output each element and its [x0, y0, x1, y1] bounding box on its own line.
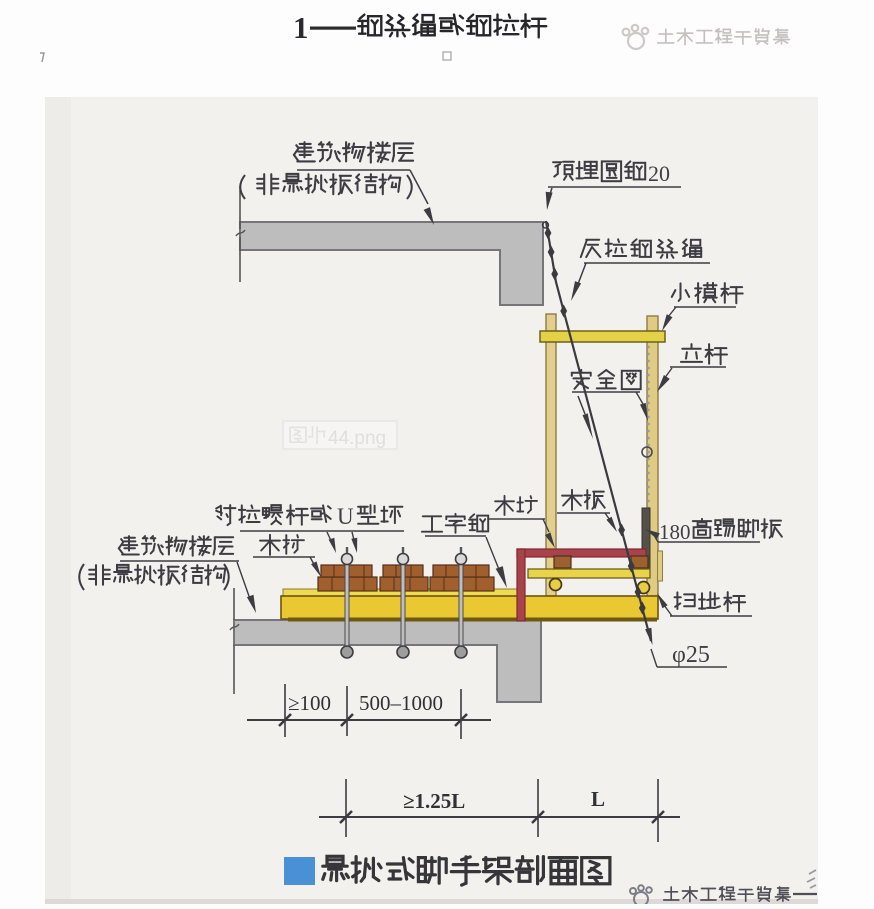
svg-text:180: 180	[659, 520, 691, 544]
svg-text:44.png: 44.png	[328, 428, 386, 449]
svg-text:1: 1	[293, 10, 309, 45]
svg-text:L: L	[591, 787, 605, 811]
svg-text:≥100: ≥100	[288, 691, 331, 715]
svg-text:U: U	[337, 504, 354, 529]
svg-text:20: 20	[648, 161, 670, 186]
svg-text:500–1000: 500–1000	[359, 691, 443, 715]
svg-text:≥1.25L: ≥1.25L	[403, 789, 465, 813]
svg-text:φ25: φ25	[672, 642, 710, 668]
